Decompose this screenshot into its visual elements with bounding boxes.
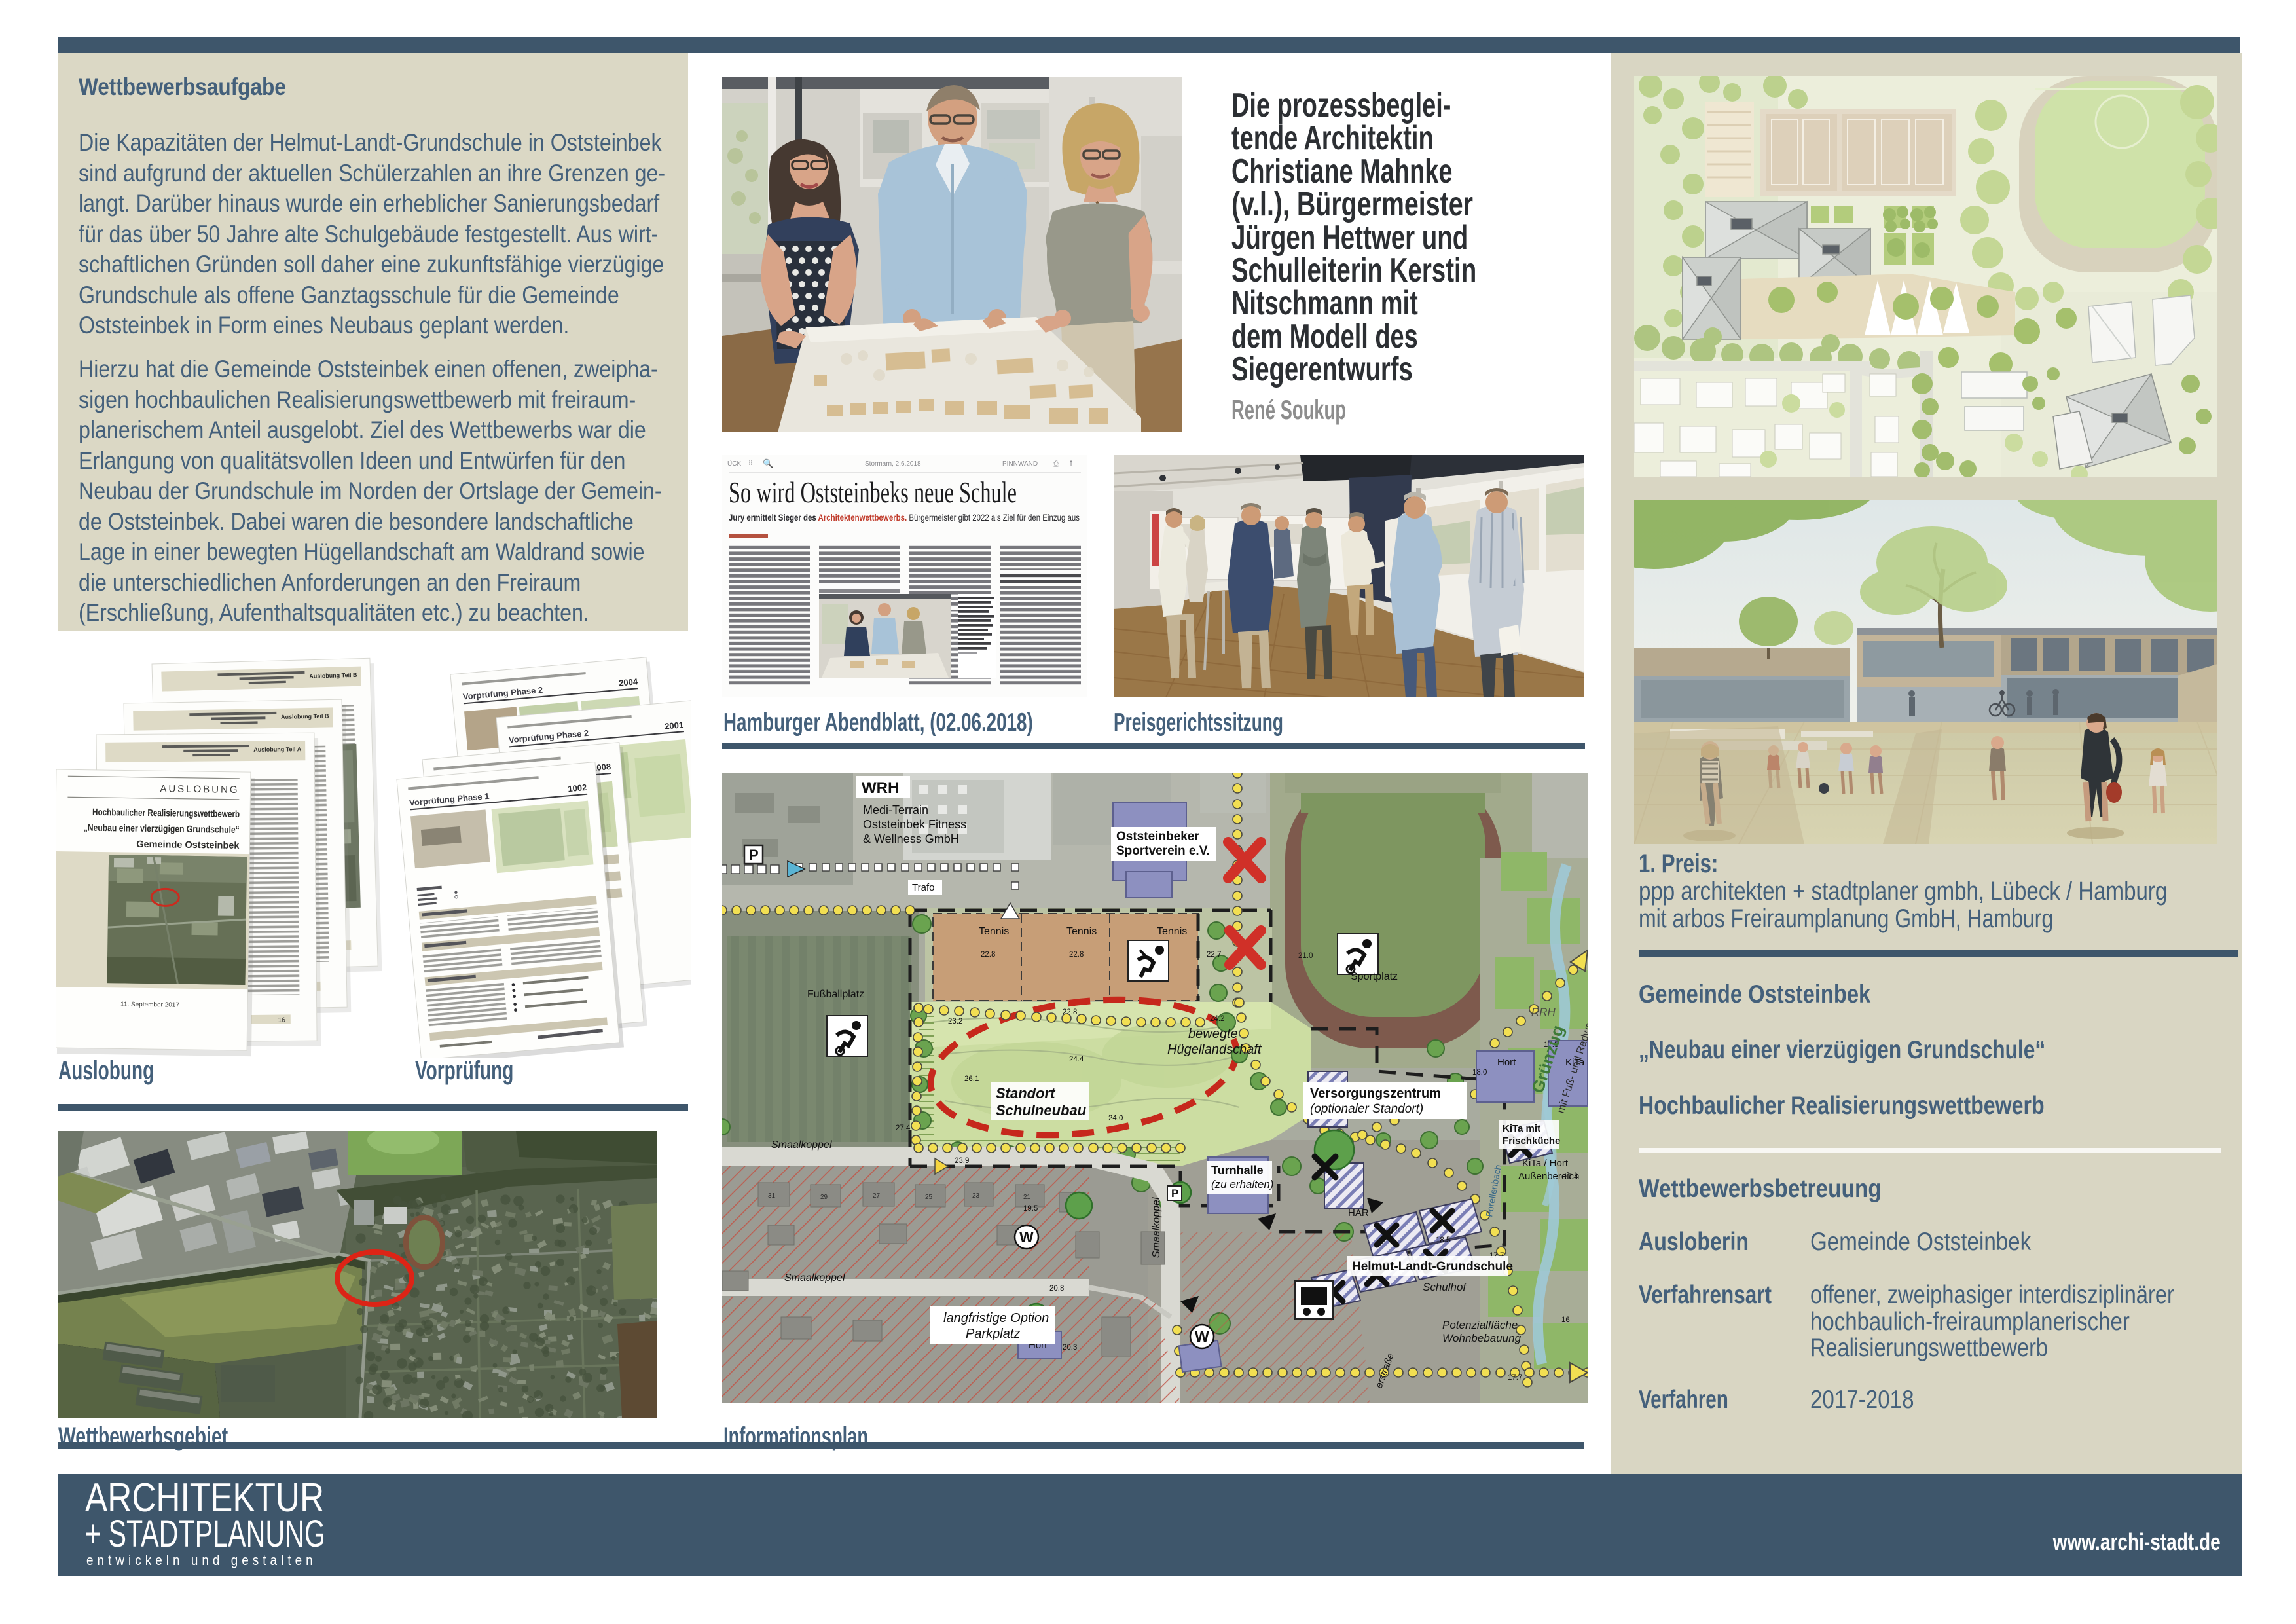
svg-text:ÜCK: ÜCK bbox=[727, 460, 741, 468]
svg-text:W: W bbox=[1019, 1228, 1034, 1246]
svg-text:Standort: Standort bbox=[996, 1085, 1056, 1101]
svg-text:Tennis: Tennis bbox=[1066, 926, 1097, 937]
svg-text:23.2: 23.2 bbox=[948, 1018, 962, 1025]
svg-text:24.2: 24.2 bbox=[1210, 1015, 1224, 1023]
svg-text:Sportplatz: Sportplatz bbox=[1351, 971, 1398, 982]
svg-text:Sportverein e.V.: Sportverein e.V. bbox=[1116, 844, 1210, 858]
svg-text:22.8: 22.8 bbox=[981, 951, 995, 959]
svg-text:11. September 2017: 11. September 2017 bbox=[120, 1001, 179, 1008]
svg-text:20.3: 20.3 bbox=[1063, 1344, 1077, 1352]
svg-text:PINNWAND: PINNWAND bbox=[1002, 460, 1038, 468]
svg-text:Medi-Terrain: Medi-Terrain bbox=[863, 803, 928, 817]
svg-text:17.7: 17.7 bbox=[1508, 1374, 1522, 1382]
svg-text:21.0: 21.0 bbox=[1298, 952, 1313, 960]
svg-text:23: 23 bbox=[972, 1192, 980, 1200]
svg-text:Jury ermittelt Sieger des Arch: Jury ermittelt Sieger des Architektenwet… bbox=[729, 512, 1080, 523]
svg-text:⠿: ⠿ bbox=[748, 460, 753, 468]
svg-text:Smaalkoppel: Smaalkoppel bbox=[771, 1139, 832, 1151]
svg-text:24.4: 24.4 bbox=[1069, 1056, 1084, 1063]
svg-text:W: W bbox=[1195, 1328, 1209, 1345]
svg-text:22.7: 22.7 bbox=[1207, 951, 1221, 959]
svg-text:Hort: Hort bbox=[1497, 1057, 1516, 1068]
svg-text:HAR: HAR bbox=[1348, 1208, 1369, 1219]
svg-text:Tennis: Tennis bbox=[979, 926, 1009, 937]
svg-text:P: P bbox=[1171, 1187, 1178, 1200]
svg-text:Oststeinbek Fitness: Oststeinbek Fitness bbox=[863, 818, 966, 831]
svg-text:22.8: 22.8 bbox=[1063, 1008, 1077, 1016]
svg-text:Trafo: Trafo bbox=[912, 882, 934, 893]
svg-text:26.1: 26.1 bbox=[964, 1075, 979, 1083]
svg-text:2004: 2004 bbox=[619, 676, 639, 688]
svg-text:Versorgungszentrum: Versorgungszentrum bbox=[1310, 1086, 1441, 1101]
svg-text:bewegte: bewegte bbox=[1188, 1027, 1238, 1041]
svg-text:Parkplatz: Parkplatz bbox=[966, 1327, 1020, 1341]
svg-text:Smaalkoppel: Smaalkoppel bbox=[784, 1272, 845, 1283]
svg-text:Auslobung Teil A: Auslobung Teil A bbox=[253, 746, 302, 753]
svg-text:RRH: RRH bbox=[1531, 1006, 1556, 1018]
svg-text:31: 31 bbox=[768, 1192, 776, 1200]
svg-text:16: 16 bbox=[1561, 1316, 1570, 1324]
svg-text:Frischküche: Frischküche bbox=[1503, 1135, 1560, 1147]
svg-text:Schulhof: Schulhof bbox=[1423, 1281, 1467, 1293]
svg-text:22.8: 22.8 bbox=[1069, 951, 1084, 959]
svg-text:(zu erhalten): (zu erhalten) bbox=[1211, 1178, 1273, 1190]
svg-text:1002: 1002 bbox=[568, 783, 587, 794]
svg-text:2001: 2001 bbox=[665, 720, 684, 731]
svg-text:18.0: 18.0 bbox=[1472, 1069, 1487, 1077]
svg-text:⎙: ⎙ bbox=[1053, 459, 1059, 468]
svg-text:19.5: 19.5 bbox=[1023, 1205, 1038, 1213]
svg-text:KiTa / Hort: KiTa / Hort bbox=[1522, 1158, 1569, 1169]
svg-text:Auslobung Teil B: Auslobung Teil B bbox=[281, 713, 329, 720]
svg-text:20.8: 20.8 bbox=[1049, 1285, 1064, 1293]
svg-text:„Neubau einer vierzügigen Grun: „Neubau einer vierzügigen Grundschule“ bbox=[84, 823, 240, 836]
svg-text:Schulneubau: Schulneubau bbox=[996, 1102, 1087, 1118]
svg-text:langfristige Option: langfristige Option bbox=[943, 1311, 1049, 1325]
svg-text:KiTa mit: KiTa mit bbox=[1503, 1123, 1540, 1134]
svg-text:18.5: 18.5 bbox=[1436, 1236, 1450, 1244]
svg-text:🔍: 🔍 bbox=[763, 458, 773, 468]
svg-text:Turnhalle: Turnhalle bbox=[1211, 1164, 1264, 1177]
svg-text:Außenbereich: Außenbereich bbox=[1518, 1171, 1579, 1182]
svg-text:29: 29 bbox=[820, 1194, 828, 1201]
svg-text:Smaalkoppel: Smaalkoppel bbox=[1151, 1197, 1162, 1258]
svg-text:23.9: 23.9 bbox=[955, 1157, 969, 1165]
svg-text:Auslobung Teil B: Auslobung Teil B bbox=[309, 672, 357, 680]
svg-text:Tennis: Tennis bbox=[1157, 926, 1187, 937]
svg-text:Potenzialfläche: Potenzialfläche bbox=[1442, 1319, 1518, 1331]
svg-text:So wird Oststeinbeks neue Schu: So wird Oststeinbeks neue Schule bbox=[729, 475, 1017, 509]
svg-text:21: 21 bbox=[1023, 1194, 1031, 1201]
svg-text:Wohnbebauung: Wohnbebauung bbox=[1442, 1332, 1522, 1344]
svg-text:Oststeinbeker: Oststeinbeker bbox=[1116, 830, 1199, 843]
svg-text:Hügellandschaft: Hügellandschaft bbox=[1167, 1043, 1262, 1057]
svg-text:WRH: WRH bbox=[862, 779, 899, 797]
svg-text:(optionaler Standort): (optionaler Standort) bbox=[1310, 1102, 1423, 1116]
svg-text:Stormarn, 2.6.2018: Stormarn, 2.6.2018 bbox=[865, 460, 921, 468]
svg-text:↥: ↥ bbox=[1068, 459, 1074, 468]
svg-text:& Wellness GmbH: & Wellness GmbH bbox=[863, 832, 959, 845]
svg-text:Hochbaulicher Realisierungswet: Hochbaulicher Realisierungswettbewerb bbox=[92, 807, 240, 820]
svg-text:27: 27 bbox=[873, 1192, 881, 1200]
svg-text:AUSLOBUNG: AUSLOBUNG bbox=[160, 783, 239, 796]
svg-text:27.4: 27.4 bbox=[896, 1124, 911, 1132]
svg-text:16: 16 bbox=[278, 1016, 286, 1024]
svg-text:Helmut-Landt-Grundschule: Helmut-Landt-Grundschule bbox=[1352, 1260, 1513, 1274]
svg-text:P: P bbox=[749, 847, 759, 863]
svg-text:24.0: 24.0 bbox=[1108, 1115, 1123, 1122]
svg-text:Gemeinde Oststeinbek: Gemeinde Oststeinbek bbox=[136, 840, 240, 851]
svg-text:Fußballplatz: Fußballplatz bbox=[807, 989, 864, 1000]
svg-text:25: 25 bbox=[925, 1194, 933, 1201]
